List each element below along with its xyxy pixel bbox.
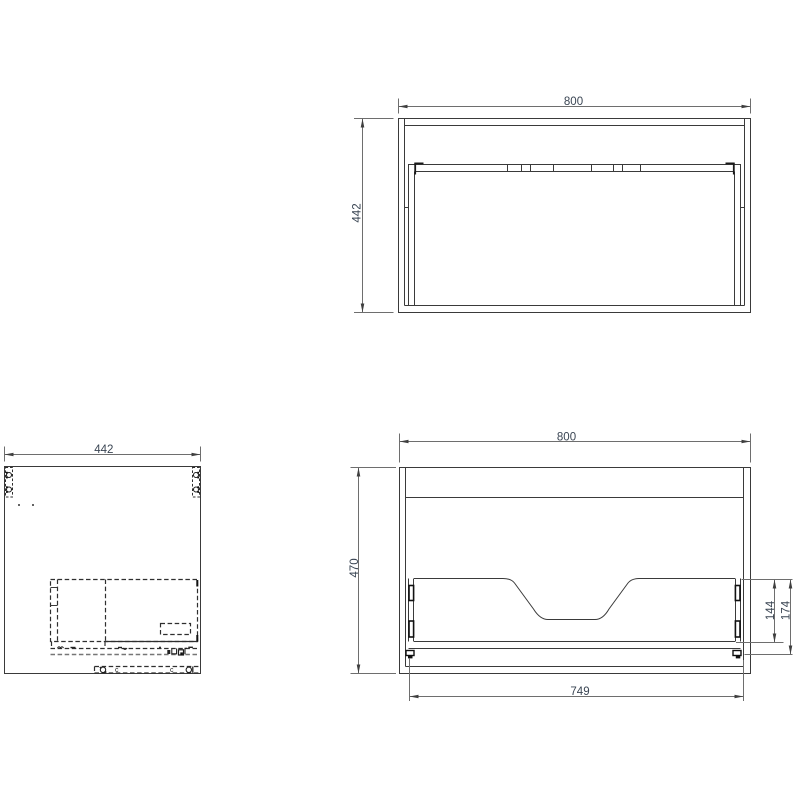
svg-text:c: c — [170, 667, 174, 674]
svg-text:749: 749 — [570, 686, 589, 698]
svg-text:174: 174 — [781, 600, 793, 620]
svg-text:c: c — [115, 667, 119, 674]
svg-text:800: 800 — [564, 96, 583, 108]
svg-text:442: 442 — [94, 444, 113, 456]
svg-text:442: 442 — [351, 203, 363, 222]
svg-text:470: 470 — [349, 558, 361, 577]
svg-text:800: 800 — [557, 432, 576, 444]
svg-text:144: 144 — [765, 600, 777, 620]
